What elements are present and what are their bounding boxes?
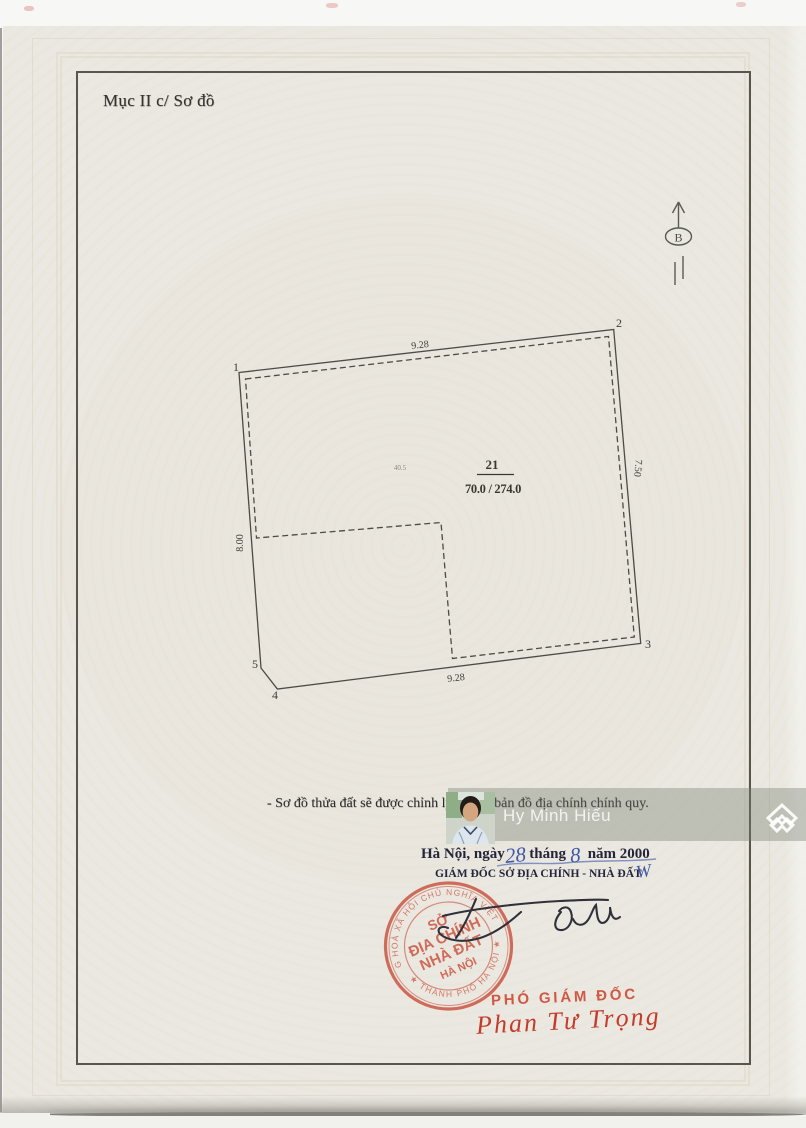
svg-text:8.00: 8.00 — [235, 534, 246, 552]
svg-text:1: 1 — [233, 360, 239, 374]
svg-text:B: B — [674, 231, 682, 245]
svg-text:21: 21 — [486, 457, 499, 472]
svg-text:9.28: 9.28 — [411, 339, 430, 352]
svg-text:4: 4 — [272, 688, 278, 702]
svg-text:9.28: 9.28 — [447, 672, 466, 685]
svg-text:7.50: 7.50 — [631, 459, 643, 477]
svg-text:3: 3 — [645, 637, 651, 651]
svg-text:40.5: 40.5 — [394, 464, 407, 472]
svg-text:70.0 / 274.0: 70.0 / 274.0 — [465, 482, 521, 496]
svg-text:5: 5 — [252, 657, 258, 671]
svg-text:2: 2 — [616, 316, 622, 330]
